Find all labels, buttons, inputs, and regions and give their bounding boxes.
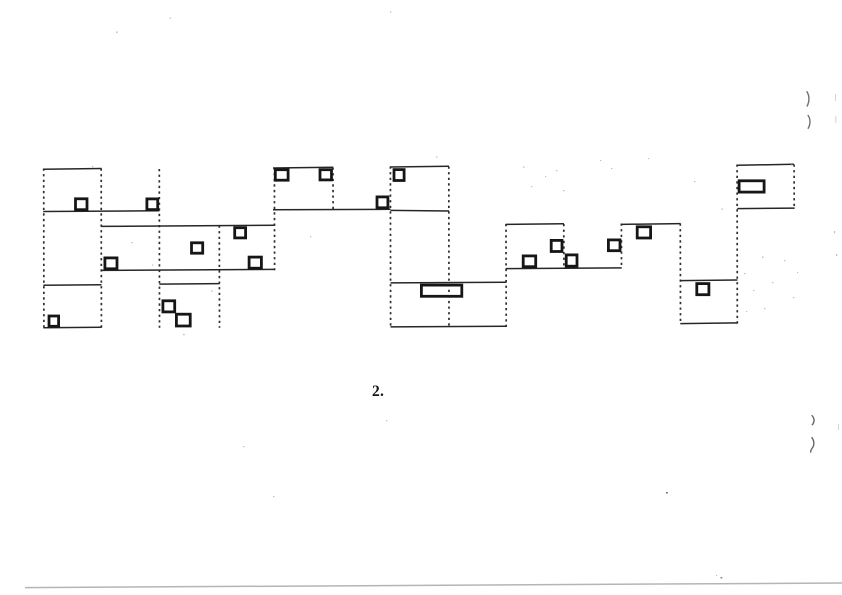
svg-text:2.: 2. [372,383,384,400]
